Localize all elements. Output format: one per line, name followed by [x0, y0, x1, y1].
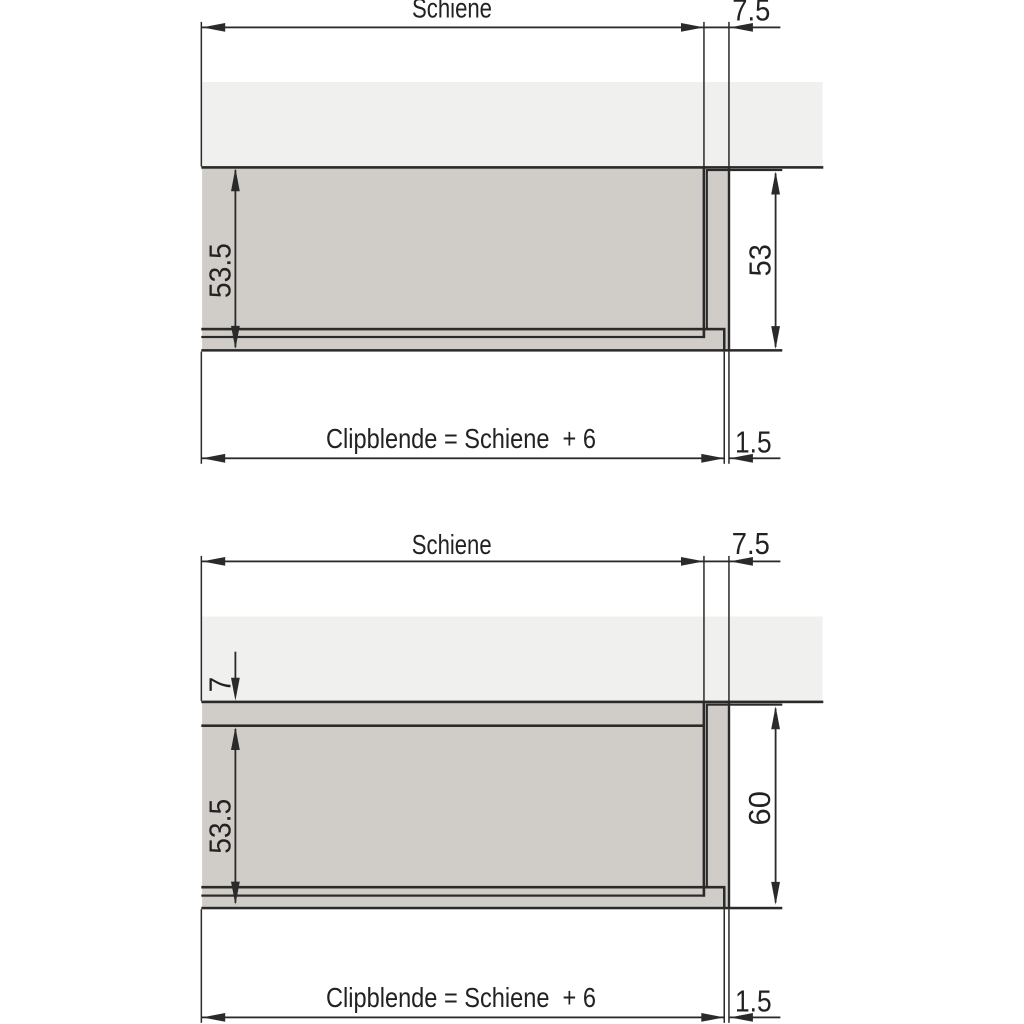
svg-text:7: 7: [203, 677, 237, 692]
svg-text:7.5: 7.5: [732, 0, 770, 27]
svg-text:60: 60: [743, 791, 777, 826]
svg-text:Schiene: Schiene: [412, 0, 492, 23]
svg-text:1.5: 1.5: [735, 984, 772, 1018]
svg-text:Schiene: Schiene: [412, 529, 492, 560]
svg-text:Clipblende = Schiene + 6: Clipblende = Schiene + 6: [326, 982, 596, 1013]
svg-text:53: 53: [743, 244, 777, 276]
svg-text:53.5: 53.5: [203, 243, 237, 298]
svg-text:53.5: 53.5: [203, 799, 237, 854]
svg-text:Clipblende = Schiene + 6: Clipblende = Schiene + 6: [326, 423, 596, 454]
svg-text:7.5: 7.5: [732, 527, 770, 561]
svg-text:1.5: 1.5: [735, 425, 772, 459]
